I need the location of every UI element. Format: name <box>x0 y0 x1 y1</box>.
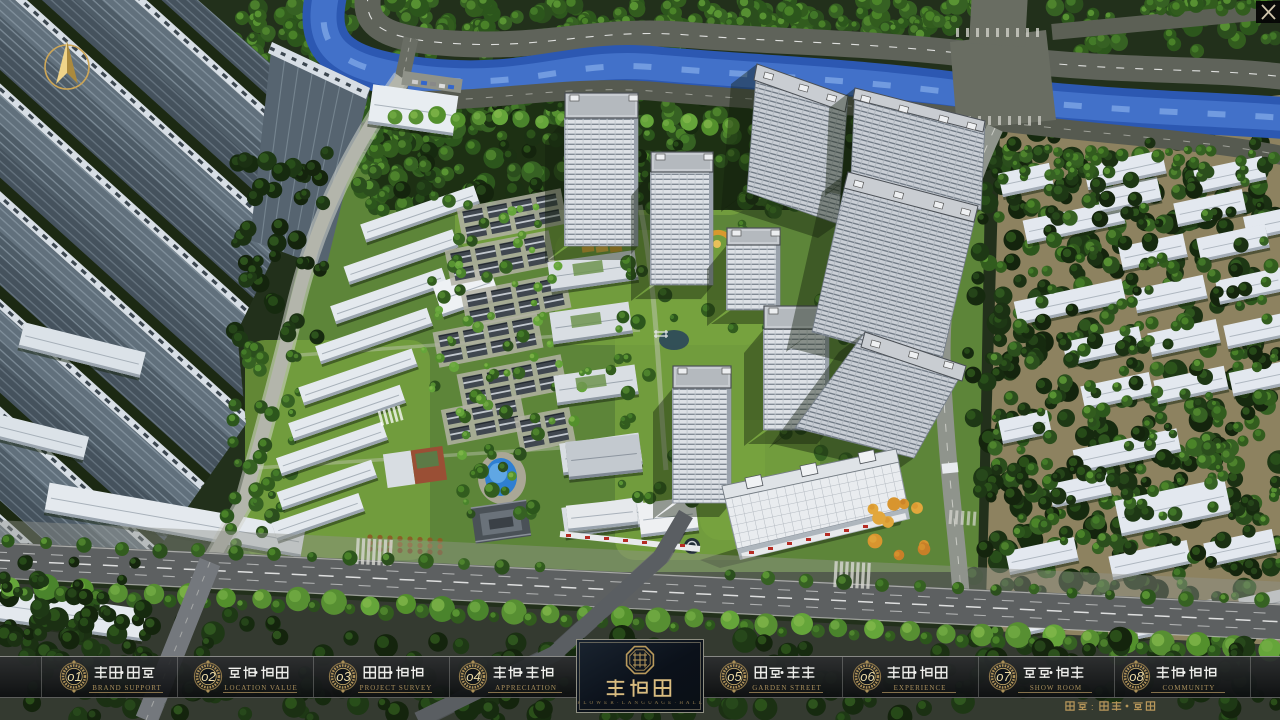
svg-text:o1: o1 <box>67 669 81 684</box>
svg-text:o4: o4 <box>466 669 480 684</box>
svg-text::: : <box>1091 702 1094 712</box>
svg-text:o2: o2 <box>201 669 216 684</box>
svg-text:o8: o8 <box>1129 669 1144 684</box>
svg-text:o7: o7 <box>996 669 1011 684</box>
svg-text:o6: o6 <box>860 669 875 684</box>
svg-text:o5: o5 <box>727 669 742 684</box>
svg-text:o3: o3 <box>336 669 351 684</box>
